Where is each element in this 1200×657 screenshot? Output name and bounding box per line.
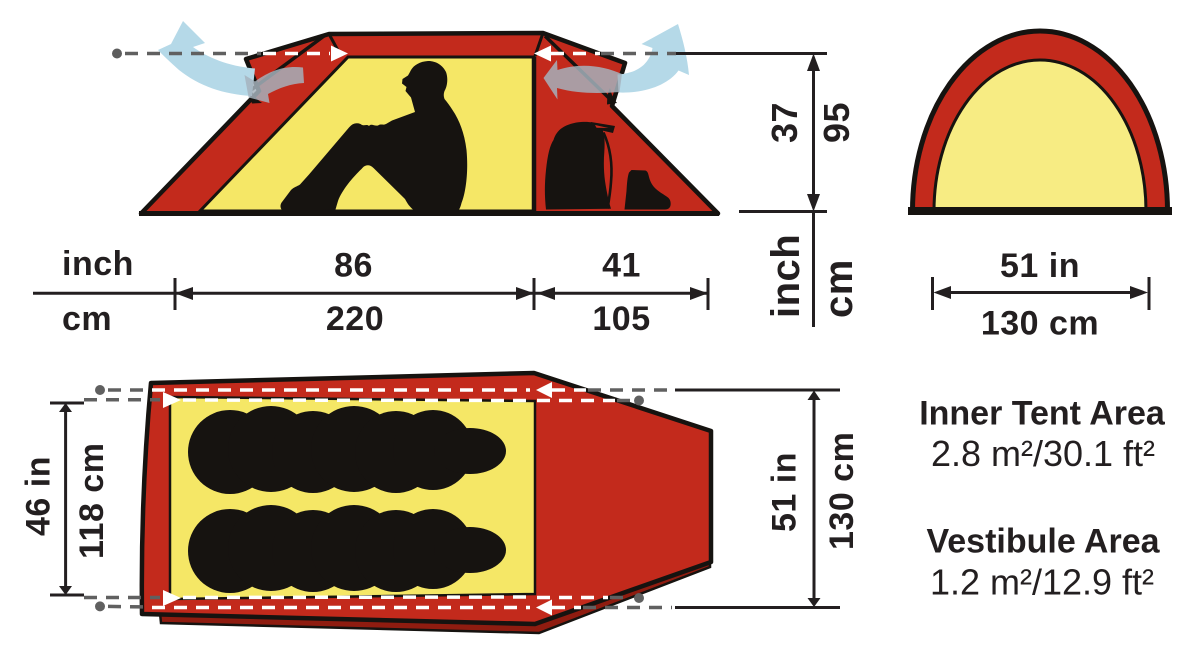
svg-text:Inner Tent Area: Inner Tent Area [919,395,1166,433]
svg-text:46 in: 46 in [20,456,58,536]
svg-text:105: 105 [592,300,650,338]
svg-text:95: 95 [816,102,857,143]
svg-text:51 in: 51 in [1000,247,1080,285]
svg-text:cm: cm [817,259,861,318]
svg-text:cm: cm [62,300,112,338]
svg-text:2.8 m²/30.1 ft²: 2.8 m²/30.1 ft² [931,433,1155,474]
svg-text:220: 220 [326,300,384,338]
svg-text:Vestibule Area: Vestibule Area [926,523,1160,561]
svg-text:51 in: 51 in [766,452,804,532]
svg-text:inch: inch [764,234,808,318]
svg-text:86: 86 [334,247,373,285]
svg-text:41: 41 [602,247,641,285]
svg-text:inch: inch [62,245,134,283]
svg-text:130 cm: 130 cm [823,432,861,550]
svg-text:1.2 m²/12.9 ft²: 1.2 m²/12.9 ft² [930,562,1154,603]
svg-text:130 cm: 130 cm [981,305,1099,343]
svg-text:37: 37 [764,102,805,143]
svg-text:118 cm: 118 cm [73,443,111,559]
